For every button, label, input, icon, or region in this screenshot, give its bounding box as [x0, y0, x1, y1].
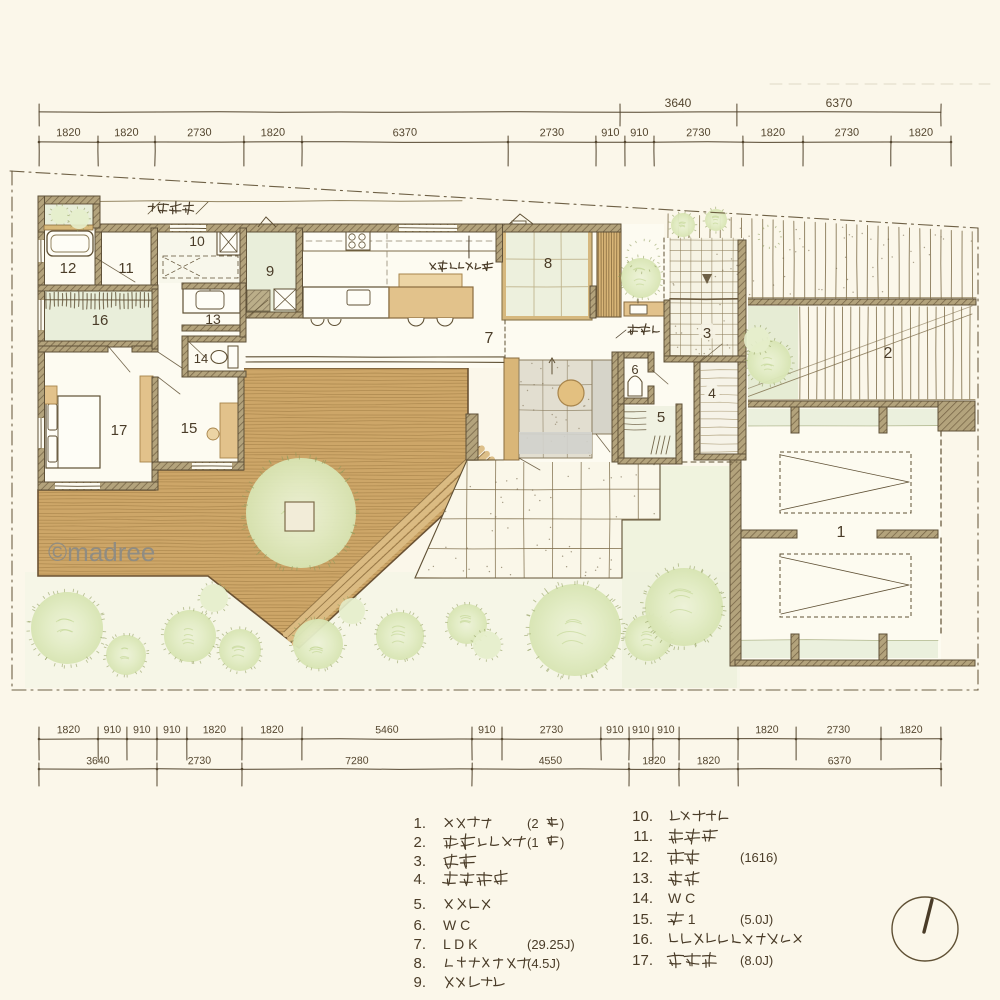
svg-text:17: 17: [111, 422, 128, 439]
svg-text:1820: 1820: [755, 724, 779, 737]
svg-text:3.: 3.: [413, 853, 426, 870]
svg-text:2730: 2730: [540, 724, 564, 737]
svg-text:1820: 1820: [114, 127, 139, 140]
svg-text:4: 4: [708, 385, 716, 401]
svg-text:3640: 3640: [665, 96, 692, 110]
svg-text:16.: 16.: [632, 931, 653, 948]
svg-text:2.: 2.: [413, 834, 426, 851]
svg-text:©madree: ©madree: [48, 537, 155, 567]
svg-text:1820: 1820: [908, 127, 933, 140]
svg-text:1820: 1820: [56, 127, 81, 140]
svg-text:2730: 2730: [686, 127, 711, 140]
svg-text:910: 910: [601, 127, 620, 140]
svg-text:(8.0J): (8.0J): [740, 953, 773, 968]
svg-text:): ): [560, 835, 564, 850]
svg-text:14.: 14.: [632, 890, 653, 907]
svg-text:(1: (1: [527, 835, 539, 850]
svg-text:15.: 15.: [632, 911, 653, 928]
svg-text:7.: 7.: [413, 936, 426, 953]
svg-text:4.: 4.: [413, 871, 426, 888]
svg-text:9.: 9.: [413, 974, 426, 991]
svg-text:1820: 1820: [642, 755, 666, 768]
svg-text:1820: 1820: [760, 127, 785, 140]
svg-text:8.: 8.: [413, 955, 426, 972]
svg-text:1820: 1820: [260, 127, 285, 140]
svg-text:W C: W C: [668, 890, 695, 906]
svg-text:9: 9: [266, 263, 274, 280]
svg-text:L D K: L D K: [443, 936, 478, 952]
svg-text:910: 910: [163, 724, 181, 737]
svg-text:1820: 1820: [260, 724, 284, 737]
svg-text:10: 10: [189, 233, 205, 249]
svg-text:2730: 2730: [188, 755, 212, 768]
svg-text:11.: 11.: [633, 828, 653, 845]
svg-text:11: 11: [118, 260, 134, 277]
svg-text:1: 1: [837, 524, 846, 541]
svg-text:(1616): (1616): [740, 850, 778, 865]
svg-text:3: 3: [703, 325, 711, 342]
svg-text:910: 910: [630, 127, 649, 140]
svg-text:5460: 5460: [375, 724, 399, 737]
svg-text:910: 910: [133, 724, 151, 737]
svg-text:): ): [560, 816, 564, 831]
svg-text:4550: 4550: [539, 755, 563, 768]
svg-text:6: 6: [631, 362, 638, 377]
svg-text:910: 910: [632, 724, 650, 737]
svg-text:15: 15: [181, 420, 198, 437]
svg-text:910: 910: [606, 724, 624, 737]
svg-text:1: 1: [688, 911, 696, 927]
svg-text:5: 5: [657, 409, 665, 426]
svg-text:6370: 6370: [392, 127, 417, 140]
svg-text:6.: 6.: [413, 917, 426, 934]
svg-text:16: 16: [92, 312, 109, 329]
svg-text:W C: W C: [443, 917, 470, 933]
svg-text:10.: 10.: [632, 808, 653, 825]
svg-text:6370: 6370: [828, 755, 852, 768]
svg-text:910: 910: [657, 724, 675, 737]
svg-text:1820: 1820: [899, 724, 923, 737]
svg-text:2730: 2730: [834, 127, 859, 140]
svg-text:2: 2: [884, 345, 893, 362]
svg-text:(2: (2: [527, 816, 539, 831]
svg-text:7280: 7280: [345, 755, 369, 768]
svg-text:1820: 1820: [203, 724, 227, 737]
svg-text:(29.25J): (29.25J): [527, 937, 575, 952]
svg-text:910: 910: [478, 724, 496, 737]
svg-text:(4.5J): (4.5J): [527, 956, 560, 971]
svg-text:2730: 2730: [187, 127, 212, 140]
svg-text:12: 12: [60, 260, 77, 277]
svg-text:6370: 6370: [826, 96, 853, 110]
svg-text:2730: 2730: [827, 724, 851, 737]
svg-text:2730: 2730: [539, 127, 564, 140]
svg-text:13: 13: [205, 311, 221, 327]
svg-text:17.: 17.: [632, 952, 653, 969]
svg-text:3640: 3640: [86, 755, 110, 768]
svg-text:7: 7: [485, 330, 494, 347]
svg-text:5.: 5.: [413, 896, 426, 913]
svg-text:1.: 1.: [413, 815, 426, 832]
svg-text:1820: 1820: [697, 755, 721, 768]
svg-text:12.: 12.: [632, 849, 653, 866]
svg-text:1820: 1820: [57, 724, 81, 737]
svg-text:13.: 13.: [632, 870, 653, 887]
svg-text:8: 8: [544, 255, 552, 272]
svg-text:(5.0J): (5.0J): [740, 912, 773, 927]
svg-text:14: 14: [194, 351, 208, 366]
svg-text:910: 910: [103, 724, 121, 737]
